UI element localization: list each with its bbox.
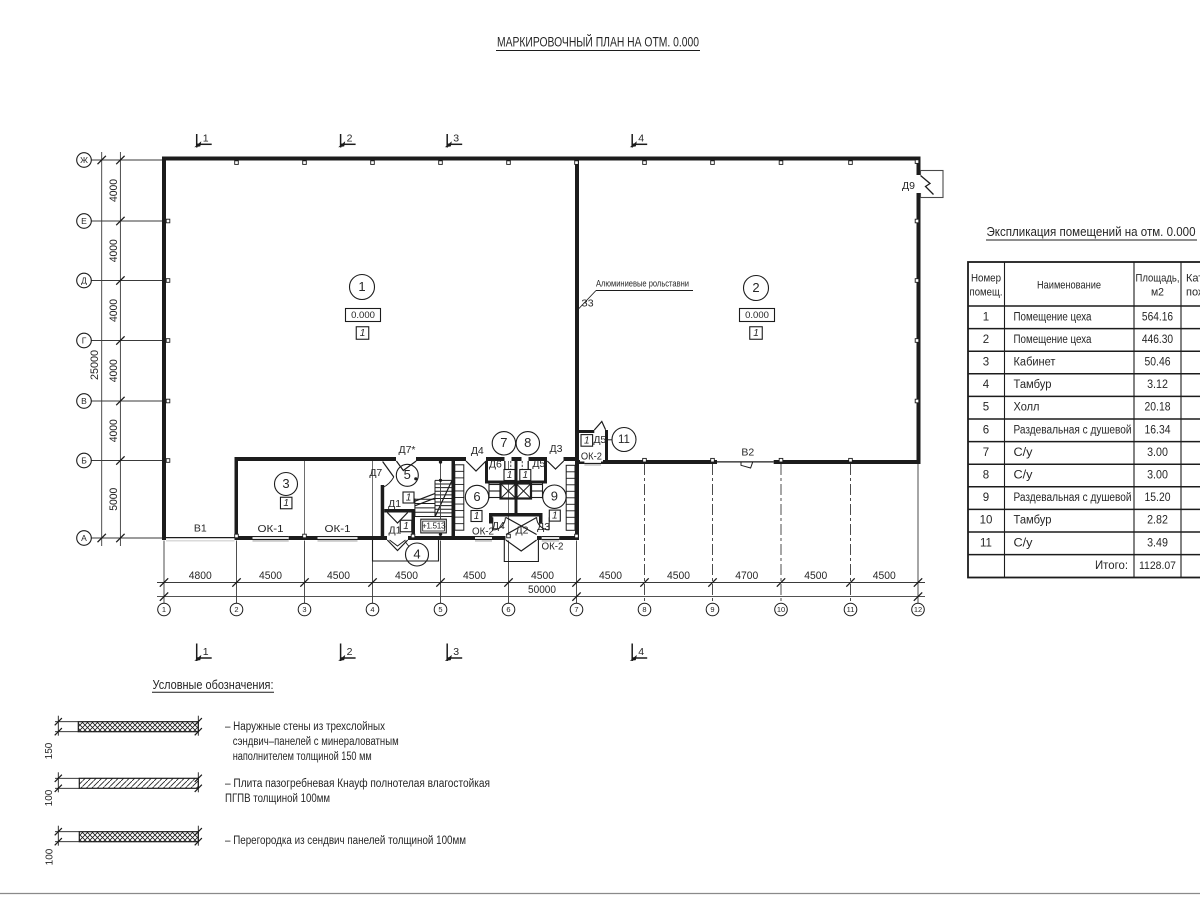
svg-text:2: 2 [234, 605, 238, 614]
svg-text:100: 100 [45, 848, 56, 865]
svg-text:8: 8 [524, 435, 531, 450]
svg-text:Раздевальная с душевой: Раздевальная с душевой [1014, 424, 1132, 436]
svg-text:5: 5 [983, 402, 989, 414]
svg-text:2: 2 [752, 280, 759, 295]
svg-text:4800: 4800 [189, 570, 212, 582]
svg-text:Д4: Д4 [471, 445, 484, 457]
svg-text:11: 11 [980, 537, 992, 549]
svg-text:1: 1 [403, 521, 409, 532]
svg-text:3.00: 3.00 [1147, 447, 1168, 459]
svg-text:25000: 25000 [89, 350, 101, 380]
svg-text:Алюминиевые рольставни: Алюминиевые рольставни [596, 279, 689, 290]
svg-text:1128.07: 1128.07 [1139, 560, 1176, 572]
svg-text:2: 2 [347, 646, 353, 658]
svg-text:15.20: 15.20 [1145, 492, 1171, 504]
svg-text:7: 7 [574, 605, 578, 614]
svg-text:4500: 4500 [599, 570, 622, 582]
svg-text:З3: З3 [581, 297, 593, 309]
svg-text:5: 5 [404, 467, 411, 482]
svg-text:ОК-2: ОК-2 [542, 540, 564, 552]
svg-text:А: А [81, 533, 87, 543]
svg-text:4500: 4500 [873, 570, 896, 582]
svg-text:2: 2 [983, 334, 989, 346]
svg-text:С/у: С/у [1014, 537, 1033, 549]
svg-text:3: 3 [282, 476, 289, 491]
svg-text:Д3: Д3 [550, 443, 563, 455]
svg-text:Д7*: Д7* [398, 444, 415, 456]
svg-text:В2: В2 [741, 446, 754, 458]
svg-text:Г: Г [82, 335, 87, 345]
svg-text:Кабинет: Кабинет [1014, 357, 1057, 369]
svg-text:11: 11 [847, 605, 855, 614]
svg-text:8: 8 [642, 605, 646, 614]
svg-text:ОК-1: ОК-1 [325, 523, 351, 535]
svg-text:1: 1 [162, 605, 166, 614]
svg-text:Б: Б [81, 455, 87, 465]
svg-text:С/у: С/у [1014, 447, 1033, 459]
svg-text:Д1: Д1 [388, 498, 401, 510]
svg-text:1: 1 [552, 511, 558, 522]
svg-text:1: 1 [584, 436, 590, 447]
svg-text:наполнителем толщиной 150 мм: наполнителем толщиной 150 мм [233, 751, 372, 763]
svg-text:1: 1 [753, 328, 759, 339]
svg-text:1: 1 [507, 470, 513, 481]
svg-text:Категория: Категория [1186, 272, 1200, 284]
svg-text:1: 1 [360, 328, 366, 339]
svg-text:5000: 5000 [108, 488, 120, 511]
svg-text:Д7: Д7 [369, 467, 382, 479]
svg-text:Д2: Д2 [516, 524, 529, 536]
svg-text:2.82: 2.82 [1147, 515, 1168, 527]
svg-text:4: 4 [370, 605, 374, 614]
svg-text:12: 12 [914, 605, 922, 614]
svg-text:Наименование: Наименование [1037, 279, 1101, 291]
svg-text:сэндвич–панелей с минераловатн: сэндвич–панелей с минераловатным [233, 736, 399, 748]
svg-text:4000: 4000 [108, 359, 120, 382]
svg-text:3: 3 [983, 357, 989, 369]
svg-text:+1.513: +1.513 [422, 522, 446, 531]
svg-text:4000: 4000 [108, 299, 120, 322]
svg-text:Экспликация помещений на отм.: Экспликация помещений на отм. 0.000 [987, 224, 1196, 239]
svg-text:– Плита пазогребневая Кнауф п: – Плита пазогребневая Кнауф полнотелая в… [225, 778, 490, 790]
svg-text:7: 7 [983, 447, 989, 459]
svg-text:50.46: 50.46 [1145, 357, 1171, 369]
svg-text:4000: 4000 [108, 419, 120, 442]
svg-text:Е: Е [81, 216, 87, 226]
svg-text:4500: 4500 [259, 570, 282, 582]
svg-text:пожарной: пожарной [1186, 286, 1200, 298]
svg-text:Помещение цеха: Помещение цеха [1014, 311, 1093, 323]
svg-text:9: 9 [983, 492, 989, 504]
svg-text:10: 10 [777, 605, 785, 614]
svg-text:0.000: 0.000 [351, 310, 375, 321]
svg-text:Условные обозначения:: Условные обозначения: [153, 678, 274, 692]
svg-text:В1: В1 [194, 522, 207, 534]
svg-text:– Перегородка из сендвич пане: – Перегородка из сендвич панелей толщино… [225, 835, 466, 847]
svg-text:4500: 4500 [667, 570, 690, 582]
svg-text:4500: 4500 [327, 570, 350, 582]
svg-text:помещ.: помещ. [970, 286, 1003, 298]
svg-text:3: 3 [302, 605, 306, 614]
svg-text:11: 11 [618, 434, 630, 446]
svg-text:3.49: 3.49 [1147, 537, 1168, 549]
svg-text:0.000: 0.000 [745, 310, 769, 321]
svg-text:6: 6 [983, 424, 989, 436]
svg-text:Д5: Д5 [532, 458, 545, 470]
svg-text:В: В [81, 396, 87, 406]
svg-text:Холл: Холл [1014, 402, 1040, 414]
svg-text:Д9: Д9 [902, 180, 915, 192]
svg-text:Площадь,: Площадь, [1136, 272, 1180, 284]
svg-text:ОК-2: ОК-2 [581, 450, 602, 462]
svg-text:6: 6 [473, 489, 480, 504]
svg-text:Д1: Д1 [389, 524, 402, 536]
svg-text:МАРКИРОВОЧНЫЙ ПЛАН НА ОТМ. 0.0: МАРКИРОВОЧНЫЙ ПЛАН НА ОТМ. 0.000 [497, 35, 699, 50]
svg-text:Д4: Д4 [492, 520, 505, 532]
svg-text:564.16: 564.16 [1142, 311, 1173, 323]
svg-text:Д6: Д6 [489, 458, 502, 470]
svg-text:4: 4 [638, 133, 644, 145]
svg-text:Раздевальная с душевой: Раздевальная с душевой [1014, 492, 1132, 504]
svg-text:5: 5 [438, 605, 442, 614]
svg-text:Ж: Ж [80, 155, 88, 165]
svg-text:446.30: 446.30 [1142, 334, 1173, 346]
svg-text:150: 150 [44, 742, 55, 759]
svg-text:Итого:: Итого: [1095, 560, 1128, 572]
svg-text:С/у: С/у [1014, 470, 1033, 482]
svg-text:6: 6 [506, 605, 510, 614]
svg-text:8: 8 [983, 470, 989, 482]
svg-text:4500: 4500 [804, 570, 827, 582]
svg-text:10: 10 [980, 515, 993, 527]
svg-text:9: 9 [710, 605, 714, 614]
svg-text:4: 4 [983, 379, 990, 391]
svg-text:3: 3 [453, 646, 459, 658]
svg-text:1: 1 [406, 493, 412, 504]
svg-text:9: 9 [551, 489, 558, 504]
svg-text:Тамбур: Тамбур [1014, 379, 1052, 391]
svg-text:2: 2 [347, 133, 353, 145]
svg-text:4700: 4700 [735, 570, 758, 582]
svg-text:1: 1 [203, 646, 209, 658]
svg-text:4: 4 [413, 546, 420, 561]
svg-text:Помещение цеха: Помещение цеха [1014, 334, 1093, 346]
svg-text:100: 100 [44, 789, 55, 806]
svg-text:3.00: 3.00 [1147, 470, 1168, 482]
svg-text:– Наружные стены из трехслойн: – Наружные стены из трехслойных [225, 721, 385, 733]
svg-text:Д3: Д3 [537, 521, 550, 533]
svg-text:4500: 4500 [395, 570, 418, 582]
svg-text:Д5: Д5 [593, 434, 606, 446]
svg-text:3.12: 3.12 [1147, 379, 1168, 391]
svg-text:ОК-1: ОК-1 [258, 523, 284, 535]
svg-text:1: 1 [203, 133, 209, 145]
svg-text:1: 1 [358, 279, 365, 294]
svg-text:1: 1 [474, 511, 480, 522]
svg-text:50000: 50000 [528, 584, 556, 596]
svg-text:4000: 4000 [108, 239, 120, 262]
svg-text:ОК-2: ОК-2 [472, 525, 494, 537]
svg-text:3: 3 [453, 133, 459, 145]
svg-text:16.34: 16.34 [1145, 424, 1172, 436]
svg-text:м2: м2 [1151, 286, 1164, 298]
svg-text:4000: 4000 [108, 179, 120, 202]
svg-text:4500: 4500 [531, 570, 554, 582]
svg-text:ПГПВ толщиной 100мм: ПГПВ толщиной 100мм [225, 793, 330, 805]
svg-text:1: 1 [283, 498, 289, 509]
svg-text:4: 4 [638, 646, 644, 658]
svg-text:Д: Д [81, 275, 87, 285]
svg-text:Тамбур: Тамбур [1014, 515, 1052, 527]
svg-text:20.18: 20.18 [1145, 402, 1171, 414]
svg-text:4500: 4500 [463, 570, 486, 582]
svg-text:7: 7 [500, 435, 507, 450]
svg-text:1: 1 [983, 311, 989, 323]
svg-text:Номер: Номер [971, 272, 1001, 284]
svg-text:1: 1 [523, 470, 529, 481]
